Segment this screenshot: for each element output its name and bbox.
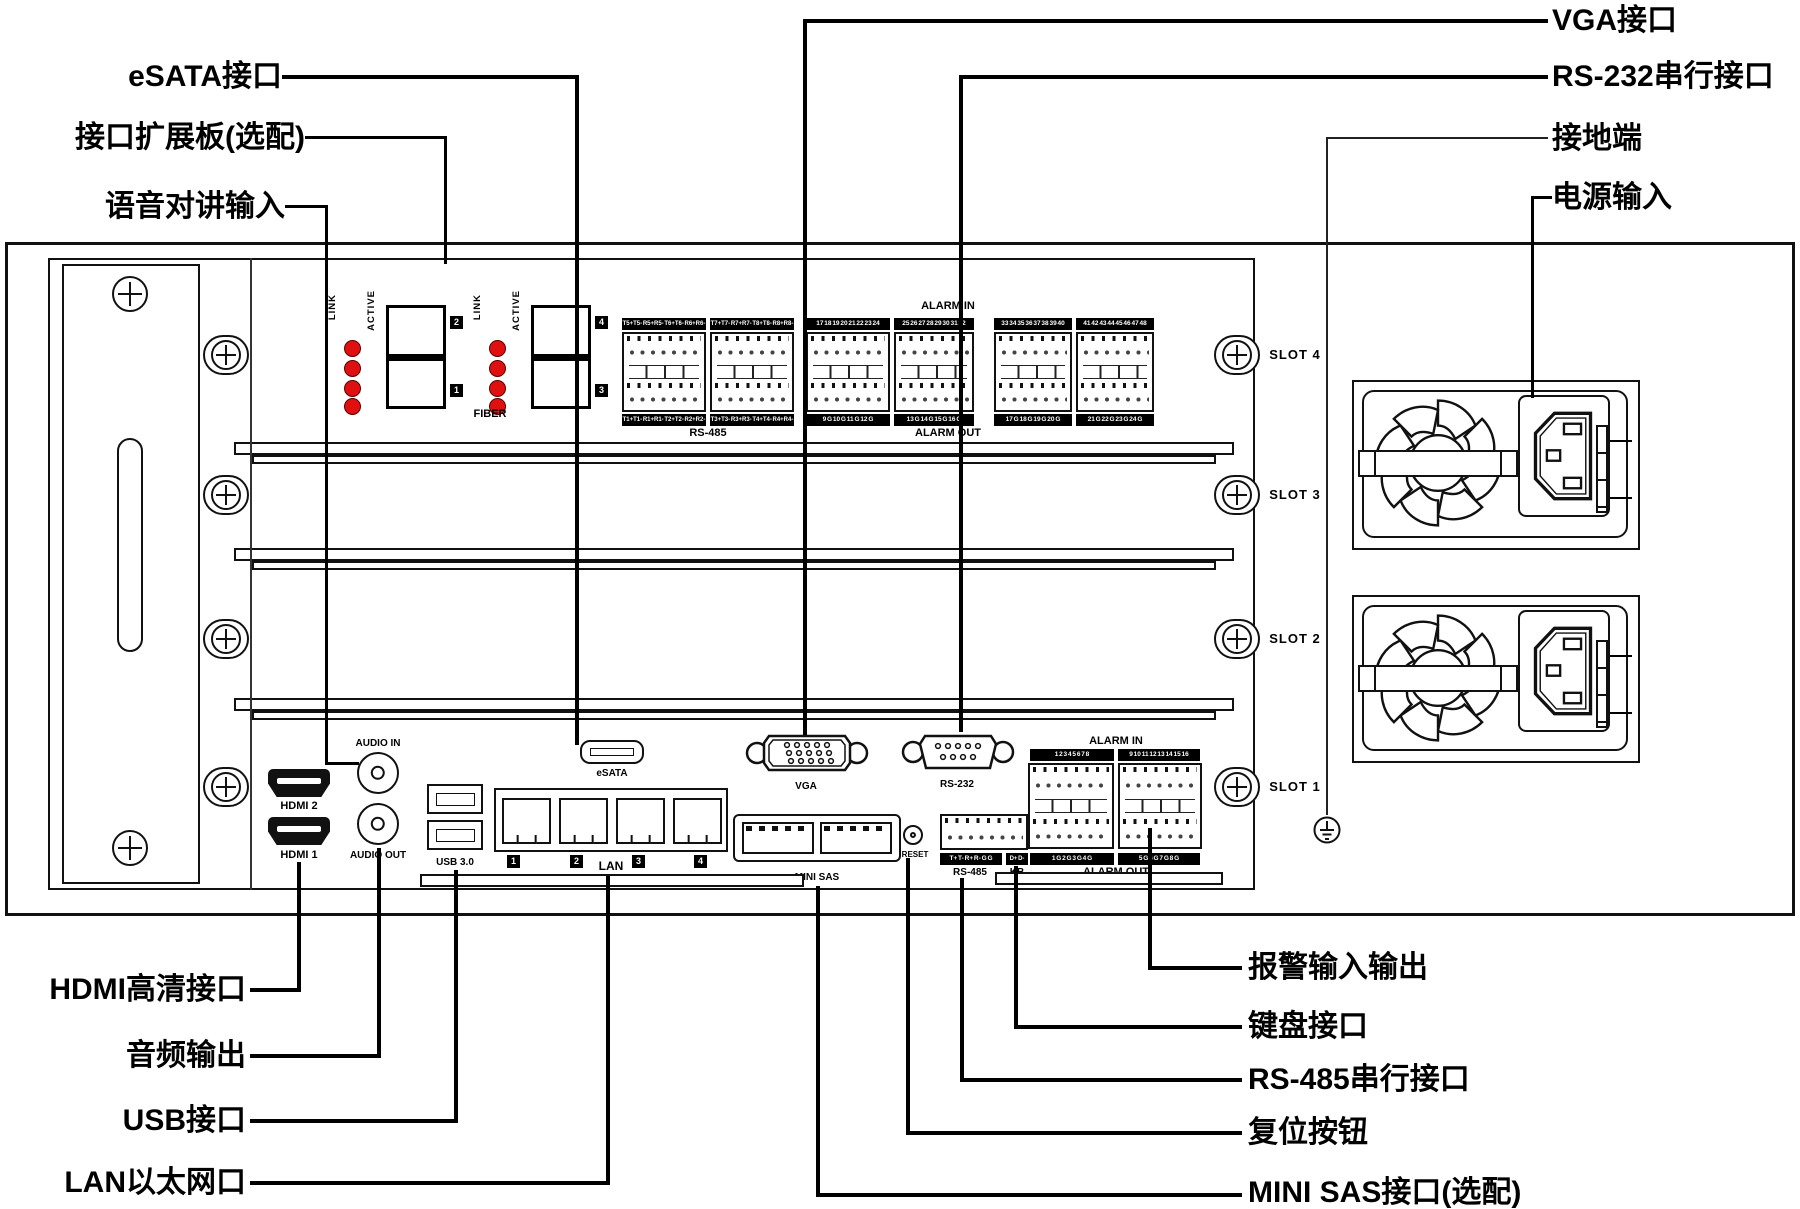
hdmi-leader-v: [297, 862, 301, 990]
terminal-block: [1076, 332, 1154, 412]
callout-expansion-board: 接口扩展板(选配): [75, 121, 305, 155]
callout-audio-talk-input: 语音对讲输入: [105, 190, 285, 224]
alarm-out-strip: 21 G 22 G 23 G 24 G: [1076, 414, 1154, 426]
audio-in-leader-h2: [325, 762, 359, 765]
fiber-module-pair-left: [386, 305, 446, 409]
audio-in-leader-h: [285, 205, 327, 208]
alarm-in-strip: 33 34 35 36 37 38 39 40: [994, 318, 1072, 330]
hdmi-1-label: HDMI 1: [280, 849, 317, 861]
fiber-label: FIBER: [474, 408, 507, 420]
audio-out-jack: [357, 803, 399, 845]
lan-port-2: [559, 798, 608, 844]
callout-power-input: 电源输入: [1552, 181, 1672, 215]
cage-screw: [211, 340, 241, 370]
esata-leader-v: [575, 75, 579, 745]
audio-out-leader-h: [250, 1054, 381, 1058]
cage-screw: [1222, 624, 1252, 654]
slot-rail-3-lip: [252, 711, 1216, 720]
usb-label: USB 3.0: [436, 857, 474, 868]
plate-screw-top: [112, 276, 148, 312]
slot-3-label: SLOT 3: [1269, 487, 1321, 502]
rs232-leader-h: [959, 75, 1548, 79]
expansion-alarm-in-label: ALARM IN: [921, 300, 975, 312]
psu-1-inlet-clip: [1596, 425, 1608, 513]
psu-1-stub: [1610, 497, 1632, 499]
main-alarm-in-label: ALARM IN: [1089, 735, 1143, 747]
hdmi-2-label: HDMI 2: [280, 800, 317, 812]
ground-leader-v: [1326, 137, 1328, 815]
cage-screw: [211, 772, 241, 802]
main-alarm-out-strip: 5 G 6 G 7 G 8 G: [1118, 853, 1200, 865]
rs485-leader-v: [960, 878, 964, 1082]
fiber-led: [344, 360, 361, 377]
alarm-out-strip: 9 G 10 G 11 G 12 G: [806, 414, 890, 426]
hdmi-leader-h: [250, 988, 301, 992]
hdmi-2-port: [268, 769, 330, 797]
main-alarm-in-strip: 1 2 3 4 5 6 7 8: [1030, 749, 1114, 761]
slot-2-label: SLOT 2: [1269, 631, 1321, 646]
callout-vga: VGA接口: [1552, 4, 1677, 38]
rs485-top-strip-1: T5+T5- R5+R5- T6+T6- R6+R6-: [622, 318, 706, 330]
slot-rail-2: [234, 548, 1234, 561]
minisas-socket-left: [742, 822, 814, 854]
slot-4-label: SLOT 4: [1269, 347, 1321, 362]
reset-leader-h: [906, 1131, 1242, 1135]
terminal-block: [622, 332, 706, 412]
cage-screw: [211, 624, 241, 654]
alarm-leader-h: [1148, 966, 1242, 970]
terminal-block: [1118, 763, 1202, 849]
rs485-label: RS-485: [953, 867, 987, 878]
cage-inner-divider: [250, 258, 252, 890]
psu-2-iec-inlet-icon: [1526, 620, 1600, 722]
rs485-strip: T+ T- R+ R- G G: [940, 853, 1002, 865]
fiber-module-pair-right: [531, 305, 591, 409]
main-alarm-in-strip: 9 10 11 12 13 14 15 16: [1118, 749, 1200, 761]
cage-screw: [1222, 480, 1252, 510]
callout-keyboard: 键盘接口: [1248, 1010, 1368, 1044]
psu-2-inlet-clip: [1596, 640, 1608, 728]
audio-in-leader-v: [325, 205, 328, 765]
rs485-top-strip-2: T7+T7- R7+R7- T8+T8- R8+R8-: [710, 318, 794, 330]
fiber-led: [344, 340, 361, 357]
alarm-out-strip: 17 G 18 G 19 G 20 G: [994, 414, 1072, 426]
fiber-led: [489, 340, 506, 357]
expansion-leader-h: [305, 136, 446, 139]
lan-port-1-tag: 1: [507, 855, 520, 868]
esata-leader-h: [282, 75, 575, 79]
fiber-link-label: LINK: [472, 294, 483, 320]
ground-terminal-icon: [1312, 813, 1342, 845]
rear-panel-diagram: SLOT 4 SLOT 3 SLOT 2 SLOT 1 LINK ACTIVE …: [0, 0, 1800, 1209]
usb-port-top: [427, 784, 483, 814]
callout-esata: eSATA接口: [128, 60, 282, 94]
minisas-socket-right: [820, 822, 892, 854]
terminal-block: [710, 332, 794, 412]
rs485-leader-h: [960, 1078, 1242, 1082]
lan-leader-v: [606, 876, 610, 1183]
rs485-connector: [940, 814, 1028, 850]
usb-leader-v: [454, 870, 458, 1121]
psu-2-stub: [1610, 655, 1632, 657]
bottom-bar-left: [420, 874, 804, 887]
reset-button: [903, 825, 923, 845]
esata-label: eSATA: [596, 768, 627, 779]
hdmi-1-port: [268, 817, 330, 845]
plate-handle-slot: [117, 438, 143, 652]
fiber-led: [489, 360, 506, 377]
alarm-leader-v: [1148, 828, 1152, 970]
usb-leader-h: [250, 1119, 458, 1123]
vga-connector-icon: [745, 730, 869, 776]
rs232-leader-v: [959, 75, 963, 732]
fiber-active-label: ACTIVE: [511, 290, 522, 331]
cage-screw: [211, 480, 241, 510]
terminal-block: [806, 332, 890, 412]
callout-rs232: RS-232串行接口: [1552, 60, 1774, 94]
lan-port-2-tag: 2: [570, 855, 583, 868]
callout-audio-out: 音频输出: [126, 1039, 246, 1073]
expansion-leader-v: [444, 136, 447, 264]
callout-hdmi: HDMI高清接口: [49, 973, 246, 1007]
callout-ground: 接地端: [1552, 122, 1642, 156]
fiber-led: [344, 398, 361, 415]
fiber-led: [344, 380, 361, 397]
callout-minisas: MINI SAS接口(选配): [1248, 1176, 1521, 1209]
rs232-connector-icon: [902, 730, 1014, 774]
expansion-rs485-label: RS-485: [689, 427, 726, 439]
kb-leader-v: [1014, 866, 1018, 1029]
vga-leader-v: [803, 19, 807, 735]
psu-2-handle: [1358, 665, 1518, 692]
main-alarm-out-strip: 1 G 2 G 3 G 4 G: [1030, 853, 1114, 865]
psu-1-iec-inlet-icon: [1526, 405, 1600, 507]
audio-in-jack: [357, 752, 399, 794]
minisas-leader-h: [816, 1193, 1242, 1197]
fiber-active-label: ACTIVE: [366, 290, 377, 331]
psu-1-handle: [1358, 450, 1518, 477]
kb-leader-h: [1014, 1025, 1242, 1029]
lan-leader-h: [250, 1181, 610, 1185]
rs485-bottom-strip-1: T1+T1- R1+R1- T2+T2- R2+R2-: [622, 414, 706, 426]
slot-rail-1-lip: [252, 455, 1216, 464]
callout-alarm-io: 报警输入输出: [1248, 951, 1428, 985]
psu-2-stub: [1610, 712, 1632, 714]
cage-screw: [1222, 772, 1252, 802]
alarm-in-strip: 17 18 19 20 21 22 23 24: [806, 318, 890, 330]
psu-1-stub: [1610, 440, 1632, 442]
kb-strip: D+ D-: [1006, 853, 1028, 865]
callout-rs485-serial: RS-485串行接口: [1248, 1063, 1470, 1097]
audio-out-leader-v: [377, 848, 381, 1056]
audio-in-label: AUDIO IN: [356, 738, 401, 749]
vga-label: VGA: [795, 781, 817, 792]
terminal-block: [994, 332, 1072, 412]
alarm-in-strip: 41 42 43 44 45 46 47 48: [1076, 318, 1154, 330]
esata-slot: [590, 748, 634, 756]
fiber-link-label: LINK: [327, 294, 338, 320]
ground-leader-h: [1327, 137, 1548, 139]
lan-label: LAN: [599, 859, 624, 873]
expansion-alarm-out-label: ALARM OUT: [915, 427, 981, 439]
lan-port-3-tag: 3: [632, 855, 645, 868]
callout-usb: USB接口: [123, 1104, 246, 1138]
plate-screw-bottom: [112, 830, 148, 866]
power-leader-v: [1531, 196, 1534, 398]
power-leader-h: [1531, 196, 1552, 199]
callout-reset-button: 复位按钮: [1248, 1116, 1368, 1150]
cage-screw: [1222, 340, 1252, 370]
lan-port-4: [673, 798, 722, 844]
slot-rail-1: [234, 442, 1234, 455]
vga-leader-h: [803, 19, 1548, 23]
lan-port-1: [502, 798, 551, 844]
terminal-block: [1028, 763, 1114, 849]
usb-port-bottom: [427, 820, 483, 850]
rs485-bottom-strip-2: T3+T3- R3+R3- T4+T4- R4+R4-: [710, 414, 794, 426]
rs232-label: RS-232: [940, 779, 974, 790]
reset-leader-v: [906, 858, 910, 1135]
bottom-bar-right: [995, 872, 1223, 885]
slot-1-label: SLOT 1: [1269, 779, 1321, 794]
minisas-leader-v: [816, 886, 820, 1197]
callout-lan: LAN以太网口: [64, 1166, 246, 1200]
fiber-tag-2: 2: [450, 316, 463, 329]
slot-rail-2-lip: [252, 561, 1216, 570]
fiber-led: [489, 380, 506, 397]
lan-port-4-tag: 4: [694, 855, 707, 868]
slot-rail-3: [234, 698, 1234, 711]
lan-port-3: [616, 798, 665, 844]
fiber-tag-4: 4: [595, 316, 608, 329]
fiber-tag-1: 1: [450, 384, 463, 397]
fiber-tag-3: 3: [595, 384, 608, 397]
